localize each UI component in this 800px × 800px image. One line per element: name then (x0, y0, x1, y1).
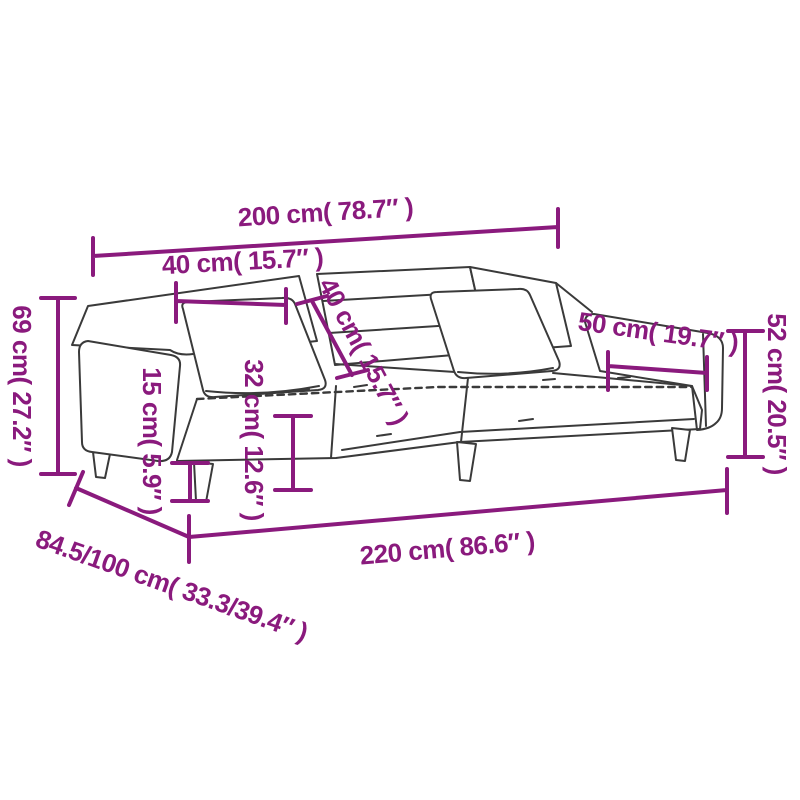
dim-15cm-label: 15 cm( 5.9″ ) (137, 367, 167, 515)
dim-32cm-label: 32 cm( 12.6″ ) (239, 359, 269, 521)
dim-40cm-top-label: 40 cm( 15.7″ ) (161, 242, 324, 280)
dim-depth-range-label: 84.5/100 cm( 33.3/39.4″ ) (32, 523, 312, 647)
leg-left (194, 462, 213, 502)
dim-200cm-label: 200 cm( 78.7″ ) (237, 192, 414, 233)
sofa-dimension-diagram: 200 cm( 78.7″ ) 40 cm( 15.7″ ) 40 cm( 15… (0, 0, 800, 800)
dim-69cm-label: 69 cm( 27.2″ ) (7, 305, 37, 467)
dim-52cm-label: 52 cm( 20.5″ ) (762, 313, 792, 475)
base-front-left-edge (177, 399, 197, 460)
dim-depth-range-line (69, 472, 189, 537)
seat-tuft-marks (296, 377, 630, 391)
leg-front-left (93, 452, 110, 478)
deck-back-edge-middle (335, 364, 455, 372)
seat-seam-left (331, 386, 336, 458)
diagram-canvas: 200 cm( 78.7″ ) 40 cm( 15.7″ ) 40 cm( 15… (0, 0, 800, 800)
dim-32cm-line (275, 416, 311, 490)
dim-69cm-line (41, 298, 75, 474)
leg-middle (457, 442, 476, 481)
leg-right (672, 428, 690, 461)
dimension-69cm: 69 cm( 27.2″ ) (7, 298, 75, 474)
dim-220cm-label: 220 cm( 86.6″ ) (358, 525, 535, 570)
